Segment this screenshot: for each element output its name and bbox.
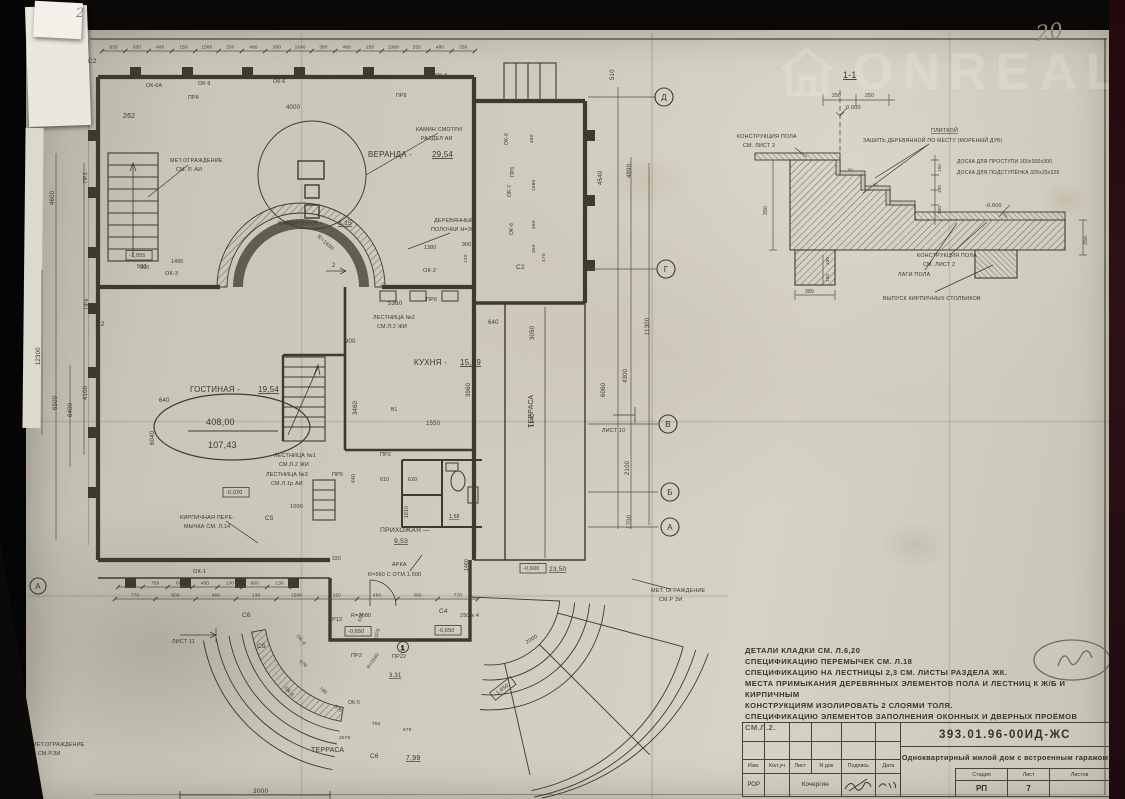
plan-label: ОК-9	[198, 81, 210, 87]
dim-value: 480	[436, 45, 445, 50]
signature-col-header: Подпись	[842, 759, 876, 774]
plan-label: 50	[848, 167, 853, 172]
plan-label: МЕТ. ОГРАЖДЕНИЕ	[651, 588, 706, 594]
signature-row: РОР Кочергин	[743, 773, 901, 796]
plan-label: КАМИННАЯ -	[278, 220, 322, 227]
plan-label: 150	[937, 185, 942, 193]
plan-label: СМ. ЛИСТ 2	[923, 262, 955, 268]
plan-label: ЛЕСТНИЦА №3	[266, 472, 308, 478]
plan-label: -0.600	[985, 203, 1002, 209]
plan-label: 100	[825, 257, 830, 265]
plan-label: 4540	[598, 170, 604, 185]
dim-value: 250	[226, 45, 235, 50]
terrace-fan-steps	[470, 597, 708, 798]
plan-label: 29,54	[432, 150, 453, 159]
plan-label: СМ. ЛИСТ 2	[743, 143, 775, 149]
plan-label: 3460	[353, 400, 359, 415]
plan-label: 6,15	[338, 220, 352, 227]
plan-label: ОК-6А	[338, 75, 354, 81]
dim-value: 1380	[388, 45, 399, 50]
signature-table: Изм.Кол.учЛистN докПодписьДата РОР Кочер…	[743, 723, 901, 796]
house-logo-icon	[775, 40, 839, 104]
dim-value: 130	[252, 593, 261, 598]
plan-label: 610	[380, 477, 389, 483]
plan-label: 1,58	[449, 514, 460, 520]
plan-label: ПР6	[510, 167, 516, 177]
detail-geometry	[755, 90, 1065, 285]
plan-label: 120	[463, 254, 469, 263]
dim-value: 835	[110, 45, 119, 50]
svg-text:1: 1	[401, 646, 405, 652]
dim-value: 130	[275, 581, 284, 586]
plan-label: 480	[529, 134, 535, 143]
photo-edge-strip	[1109, 0, 1125, 799]
plan-label: 510	[610, 69, 616, 80]
dim-value: 360	[273, 45, 282, 50]
plan-label: ОК-2	[423, 268, 436, 274]
plan-label: 1000	[290, 504, 303, 510]
stage-table: Стадия Лист Листов РП 7	[955, 768, 1109, 796]
dim-value: 770	[454, 593, 463, 598]
plan-label: ОК-6	[435, 73, 447, 79]
plan-label: 640	[488, 320, 499, 326]
plan-label: 12300	[36, 347, 42, 365]
plan-label: ПР8	[396, 93, 407, 99]
dim-value: 330	[459, 45, 468, 50]
plan-label: АРКА	[392, 562, 407, 568]
signature-scribble	[842, 773, 876, 796]
plan-label: 6500	[53, 395, 59, 410]
plan-label: 750	[372, 721, 381, 727]
plan-label: 4000	[286, 105, 301, 111]
plan-label: 320	[332, 556, 341, 562]
stairs	[108, 63, 556, 520]
plan-label: КУХНЯ -	[414, 358, 447, 367]
plan-label: ПЛИТКОЙ	[931, 126, 958, 134]
plan-label: ПР2	[351, 653, 362, 659]
signature-col-header: Кол.уч	[765, 759, 789, 774]
plan-label: 107,43	[208, 440, 237, 450]
plan-label: ДОСКА ДЛЯ ПРОСТУПИ 300х300х300	[957, 159, 1052, 165]
veranda-arch	[217, 121, 385, 287]
dim-value: 1580	[201, 45, 212, 50]
plan-label: 9,53	[394, 538, 408, 545]
plan-label: СМ. Р. АИ	[176, 167, 202, 173]
plan-label: ТЕРРАСА	[528, 395, 535, 428]
plan-label: 470	[541, 253, 547, 262]
wall-piers	[88, 67, 595, 588]
plan-label: 150	[937, 206, 942, 214]
dim-value: 460	[212, 593, 221, 598]
plan-label: ПР6	[426, 297, 437, 303]
title-block: Изм.Кол.учЛистN докПодписьДата РОР Кочер…	[742, 722, 1110, 797]
watermark: ONREAL	[775, 40, 1120, 104]
note-line: ДЕТАЛИ КЛАДКИ СМ. Л.6,20	[745, 645, 1101, 656]
plan-label: РАЗДЕЛ АИ	[421, 136, 453, 142]
plan-label: ПР5	[332, 472, 343, 478]
dim-value: 130	[126, 581, 135, 586]
floor-plan: 1 ДГВБАА 8353304801501580250480360164038…	[30, 35, 770, 799]
dim-value: 480	[343, 45, 352, 50]
plan-label: -0,020	[226, 490, 243, 496]
plan-label: ОК-6	[273, 79, 285, 85]
plan-label: ПРИХОЖАЯ —	[380, 527, 430, 534]
date-scribble	[876, 773, 901, 796]
plan-label: 2570	[339, 735, 351, 741]
plan-label: 6040	[150, 430, 156, 445]
plan-label: ОК-6	[509, 223, 515, 235]
plan-label: 19,54	[258, 385, 279, 394]
note-line: СПЕЦИФИКАЦИЮ НА ЛЕСТНИЦЫ 2,3 СМ. ЛИСТЫ Р…	[745, 667, 1101, 678]
plan-label: 2000	[525, 634, 539, 646]
plan-label: 1550	[426, 421, 441, 427]
dim-value: 770	[131, 593, 140, 598]
dim-value: 360	[413, 593, 422, 598]
plan-label: 6060	[601, 382, 607, 397]
plan-label: С5	[257, 643, 266, 650]
dim-value: 130	[226, 581, 235, 586]
plan-label: 1490	[171, 259, 183, 265]
plan-label: СМ.Л.1р АИ	[271, 481, 303, 487]
axis-letter: В	[665, 420, 671, 429]
plan-label: 4300	[623, 368, 629, 383]
general-notes: ДЕТАЛИ КЛАДКИ СМ. Л.6,20СПЕЦИФИКАЦИЮ ПЕР…	[745, 645, 1101, 733]
signature-col-header: Лист	[790, 759, 812, 774]
plan-label: ВЫПУСК КИРПИЧНЫХ СТОЛБИКОВ	[883, 296, 981, 302]
plan-label: ТЕРРАСА	[311, 747, 344, 754]
plan-label: ПР12	[328, 617, 342, 623]
signature-col-header: Дата	[876, 759, 901, 774]
plan-label: -0,600	[523, 566, 540, 572]
dim-value: 250	[413, 45, 422, 50]
plan-label: 570	[298, 659, 309, 669]
note-line: КОНСТРУКЦИЯМ ИЗОЛИРОВАТЬ 2 СЛОЯМИ ТОЛЯ.	[745, 700, 1101, 711]
plan-label: 3050	[530, 325, 536, 340]
plan-label: ЛЕСТНИЦА №2	[373, 315, 415, 321]
dim-value: 450	[201, 581, 210, 586]
dim-value: 480	[249, 45, 258, 50]
plan-label: С6	[370, 753, 379, 760]
plan-label: 4600	[50, 190, 56, 205]
signature-col-header: N док	[812, 759, 842, 774]
plan-label: 23,50	[549, 566, 566, 573]
dim-value: 750	[151, 581, 160, 586]
plan-label: 3960	[466, 382, 472, 397]
plan-label: МЕТ.ОГРАЖДЕНИЕ	[170, 158, 223, 164]
dim-value: 500	[171, 593, 180, 598]
plan-label: 408,00	[206, 417, 235, 427]
plan-label: ПР8	[188, 95, 199, 101]
plan-label: КОНСТРУКЦИЯ ПОЛА	[737, 134, 797, 140]
plan-label: 480	[531, 220, 537, 229]
plan-label: ПР2	[380, 452, 391, 458]
plan-label: С2	[516, 264, 525, 271]
plan-label: 3000	[253, 788, 268, 795]
plan-label: 150	[937, 164, 942, 172]
plan-label: -0,650	[348, 629, 365, 635]
plan-label: 5360	[388, 301, 403, 307]
plan-label: 4100	[83, 385, 89, 400]
plan-label: 780	[318, 686, 329, 696]
plan-label: 360	[531, 244, 537, 253]
plan-label: ОК-7	[378, 75, 390, 81]
note-line: СПЕЦИФИКАЦИЮ ПЕРЕМЫЧЕК СМ. Л.18	[745, 656, 1101, 667]
handwritten-page-number: 20	[1034, 18, 1064, 45]
plan-label: 3,31	[389, 673, 402, 679]
plan-label: 7,99	[406, 755, 420, 762]
stage-value: РП	[956, 781, 1008, 796]
plan-label: ДЕРЕВЯННЫЕ	[434, 218, 474, 224]
plan-label: 380	[805, 289, 814, 295]
plan-label: ПОЛОЧКИ Н=30	[431, 227, 474, 233]
plan-label: МЫЧКА СМ. Л.14	[184, 524, 230, 530]
dim-value: 600	[176, 581, 185, 586]
plan-label: КАМИН СМОТРИ	[416, 127, 462, 133]
plan-label: 4890	[627, 163, 633, 178]
plan-label: 0.000	[846, 105, 861, 111]
plan-label: ОК-4	[294, 633, 306, 646]
plan-label: МЕТ.ОГРАЖДЕНИЕ	[32, 742, 85, 748]
plan-label: 15,09	[460, 358, 481, 367]
dim-value: 1640	[295, 45, 306, 50]
plan-label: 900	[462, 242, 471, 248]
fixtures: 1	[154, 291, 478, 653]
dim-value: 460	[373, 593, 382, 598]
dim-value: 150	[179, 45, 188, 50]
axis-letter: А	[667, 523, 673, 532]
plan-label: В1	[391, 407, 398, 413]
plan-label: 2100	[625, 460, 631, 475]
plan-label: 440	[351, 474, 357, 483]
plan-label: 50	[873, 182, 878, 187]
sheets-label: Листов	[1050, 769, 1109, 781]
plan-label: ДОСКА ДЛЯ ПОДСТУПЁНКА 325х25х325	[957, 169, 1059, 176]
dimension-lines	[42, 87, 658, 540]
axis-letter: Г	[664, 265, 669, 274]
plan-label: ОК-5	[348, 700, 360, 706]
dim-value: 250	[366, 45, 375, 50]
dim-value: 150	[333, 593, 342, 598]
axis-letter: Б	[667, 488, 672, 497]
plan-label: ЛЕСТНИЦА №1	[274, 453, 316, 459]
plan-label: ЛАГИ ПОЛА	[898, 272, 931, 278]
plan-label: -0,650	[438, 628, 455, 634]
plan-label: С2	[88, 58, 97, 65]
plan-label: 1380	[424, 245, 436, 251]
document-number: 393.01.96-00ИД-ЖС	[901, 723, 1109, 747]
plan-label: 900	[140, 265, 149, 271]
dim-value: 380	[319, 45, 328, 50]
plan-label: СМ.Р.ЗИ	[38, 751, 60, 757]
plan-label: 2	[332, 263, 336, 269]
plan-label: ПР6	[84, 298, 90, 309]
plan-label: СМ.Р ЗИ	[659, 597, 682, 603]
axis-letter: Д	[661, 93, 667, 102]
dim-value: 1580	[291, 593, 302, 598]
plan-label: ОК-4	[96, 198, 102, 210]
plan-label: ОК-7	[507, 185, 513, 197]
plan-label: 900	[345, 339, 356, 345]
plan-label: R=2540	[366, 652, 381, 670]
watermark-text: ONREAL	[853, 42, 1125, 102]
plan-label: С6	[242, 612, 251, 619]
plan-label: КИРПИЧНАЯ ПЕРЕ-	[180, 515, 234, 521]
plan-label: ЗАШИТЬ ДЕРЕВЯННОЙ ПО МЕСТУ (МОРЕНЫЙ ДУБ)	[863, 136, 1003, 144]
plan-label: 620	[408, 477, 417, 483]
plan-label: ГОСТИНАЯ -	[190, 385, 240, 394]
plan-label: 675	[403, 727, 412, 733]
plan-label: 1700	[627, 514, 633, 529]
plan-label: -1,055	[129, 253, 146, 259]
plan-label: С5	[265, 515, 274, 522]
plan-label: ОК-3	[165, 271, 178, 277]
dim-value: 600	[251, 581, 260, 586]
plan-label: ОК-6А	[146, 83, 162, 89]
sheet-label: Лист	[1008, 769, 1050, 781]
dim-value: 330	[133, 45, 142, 50]
handwritten-corner-note: 2	[76, 6, 84, 21]
note-line: МЕСТА ПРИМЫКАНИЯ ДЕРЕВЯННЫХ ЭЛЕМЕНТОВ ПО…	[745, 678, 1101, 700]
plan-label: ОК-6А	[96, 233, 102, 249]
sig-name: Кочергин	[790, 773, 842, 796]
plan-label: 1460	[464, 559, 470, 571]
plan-label: С2	[96, 321, 105, 328]
plan-label: ОК-1	[193, 569, 206, 575]
sheet-number: 7	[1008, 781, 1050, 796]
sig-role: РОР	[743, 773, 765, 796]
plan-label: 11300	[645, 317, 651, 335]
plan-label: 350	[1083, 236, 1089, 245]
plan-label: СМ.Л.2 ЖИ	[279, 462, 309, 468]
plan-label: 6400	[68, 402, 74, 417]
plan-label: С4	[439, 608, 448, 615]
plan-label: КОНСТРУКЦИЯ ПОЛА	[917, 253, 977, 259]
paper-stain	[880, 520, 950, 570]
signature-col-header: Изм.	[743, 759, 765, 774]
plan-label: 250 х 4	[460, 613, 479, 619]
plan-label: ПР22	[392, 654, 406, 660]
plan-label: 150	[825, 274, 830, 282]
plan-label: 350	[763, 206, 769, 215]
plan-label: 262	[123, 113, 135, 120]
axis-letter: А	[35, 582, 41, 591]
plan-label: 1580	[531, 179, 537, 191]
project-title: Одноквартирный жилой дом с встроенным га…	[901, 747, 1109, 768]
plan-label: 640	[159, 398, 170, 404]
plan-label: R=560 С ОТМ.1,500	[368, 572, 421, 578]
plan-label: ПР3	[83, 172, 89, 183]
plan-label: ВЕРАНДА -	[368, 150, 412, 159]
plan-label: ЛИСТ 10	[602, 428, 625, 434]
sheets-total	[1050, 781, 1109, 796]
plan-label: 1810	[404, 506, 410, 518]
stage-label: Стадия	[956, 769, 1008, 781]
dim-value: 480	[156, 45, 165, 50]
plan-label: ОК-6	[504, 133, 510, 145]
plan-label: ЛИСТ 11	[172, 639, 195, 645]
plan-label: СМ.Л.2 ЖИ	[377, 324, 407, 330]
